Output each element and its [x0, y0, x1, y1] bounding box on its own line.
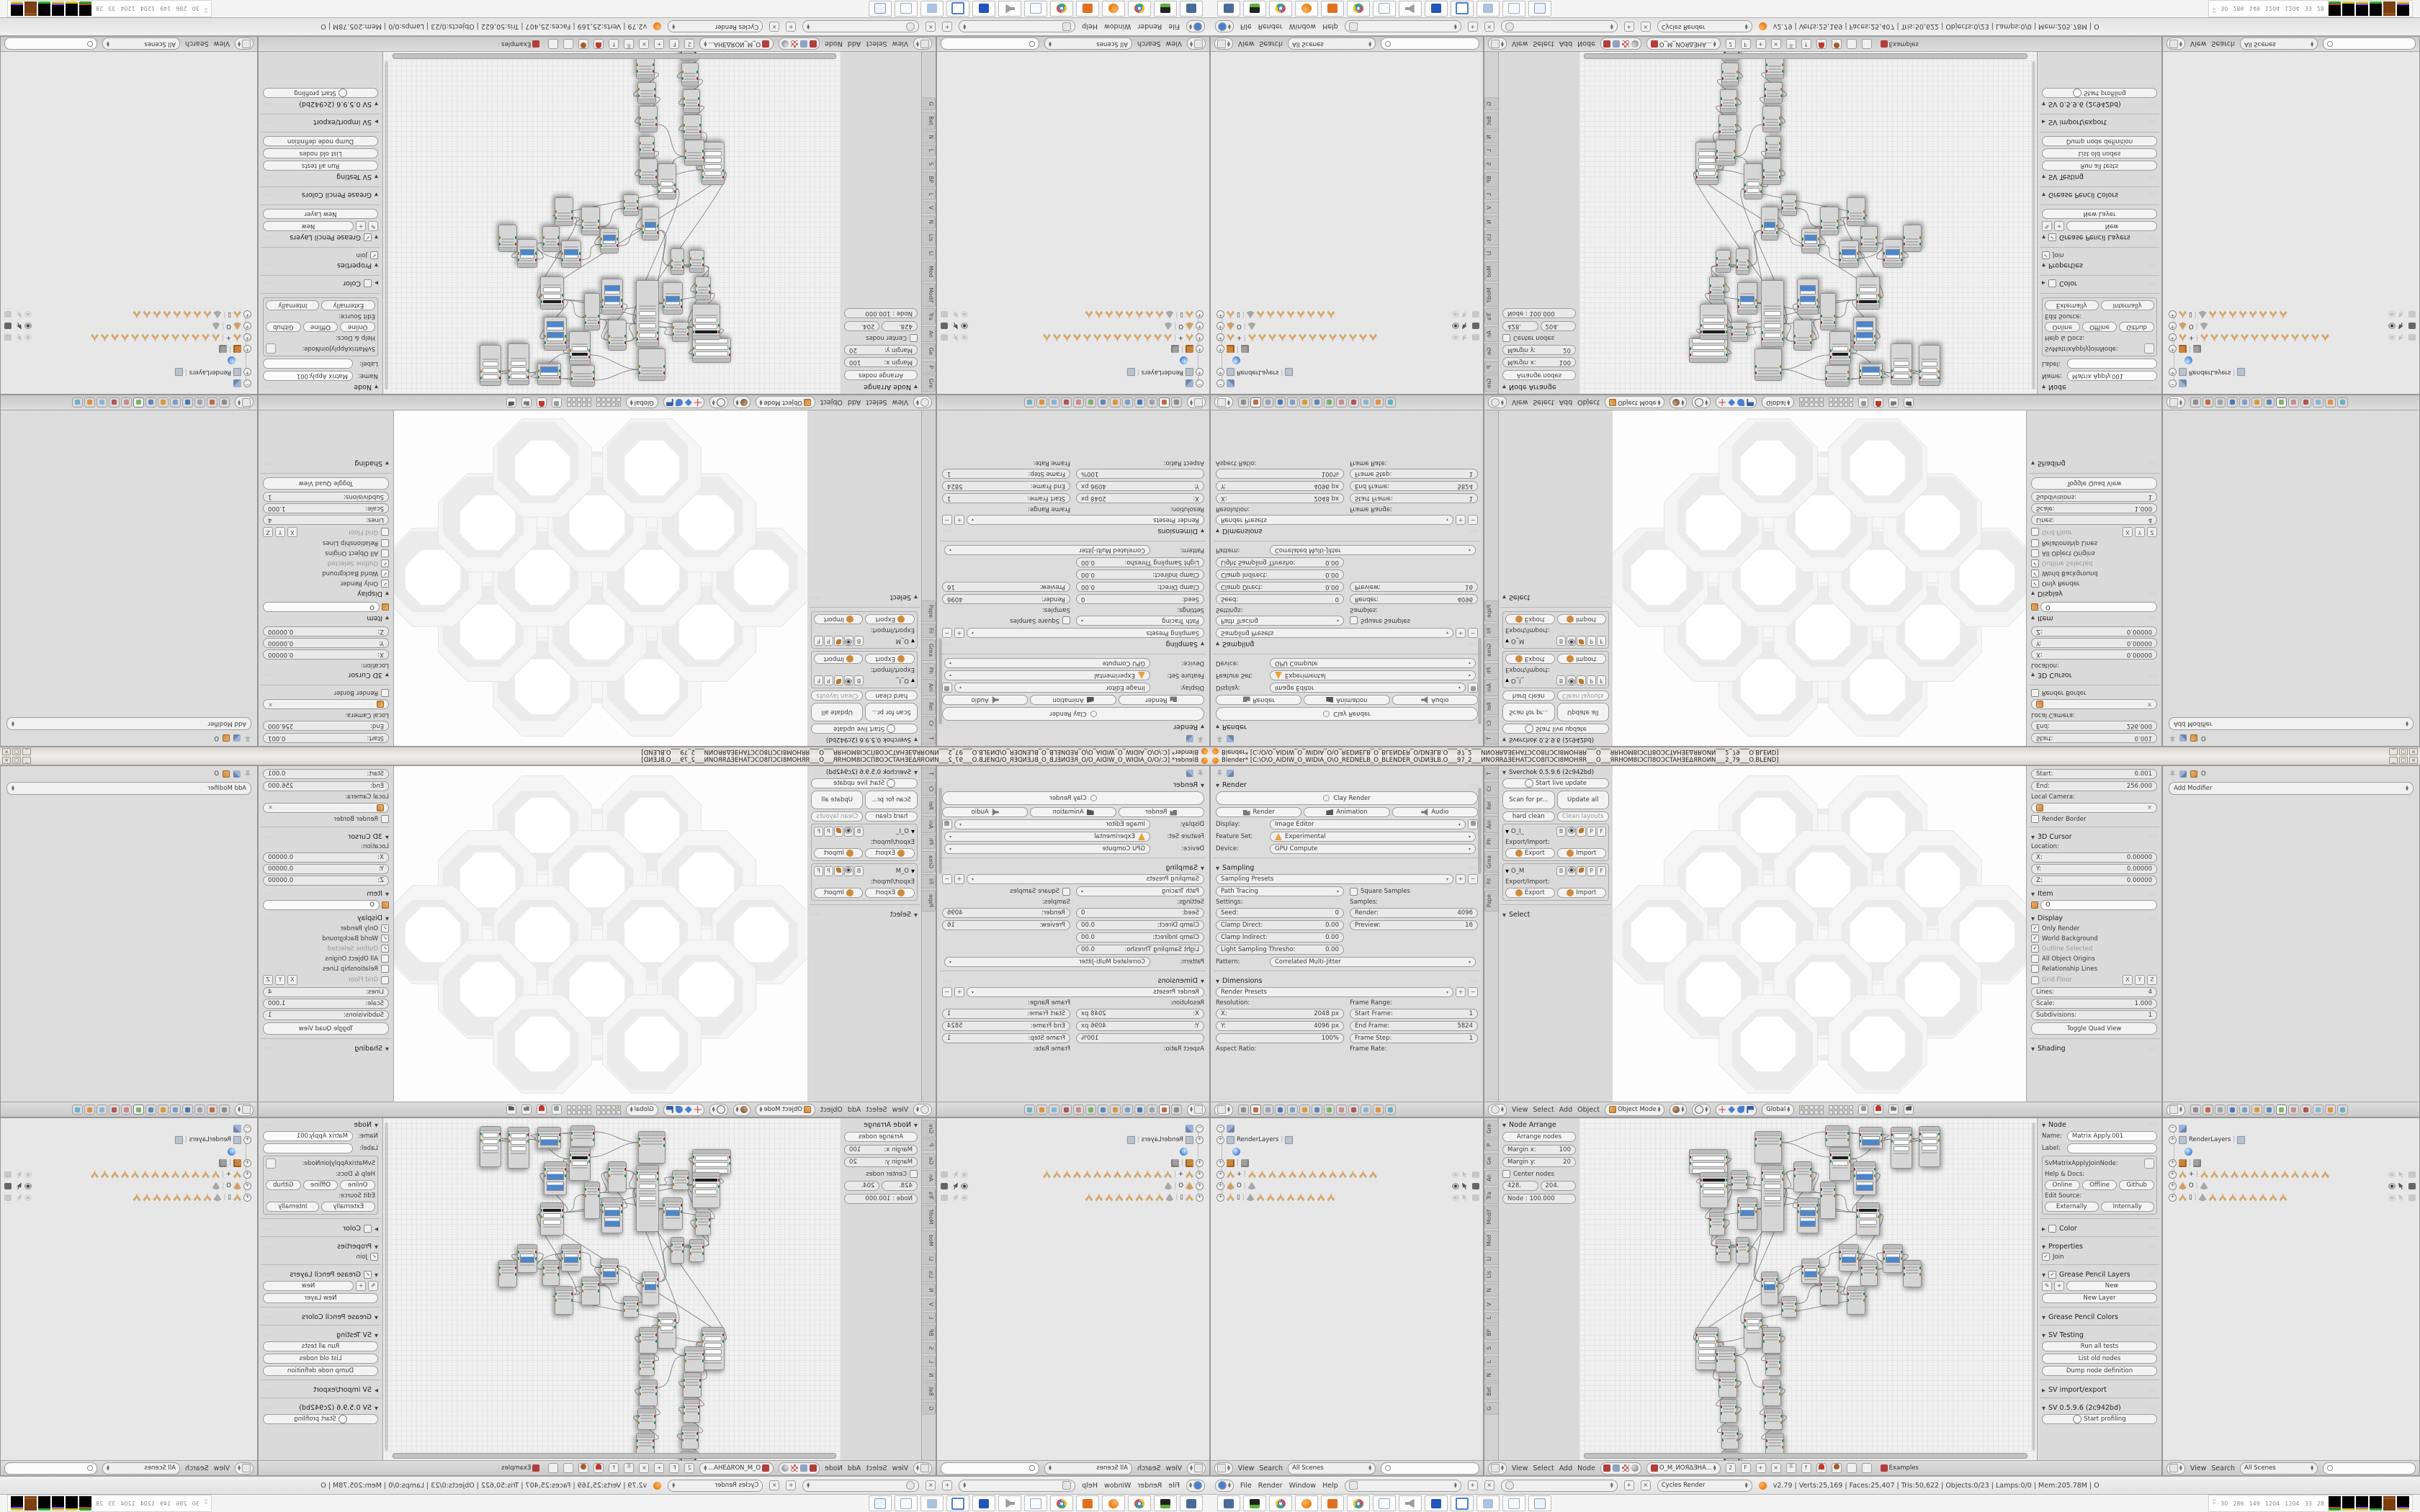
vertical-tab[interactable]: Fil: [922, 874, 936, 888]
sverchok-node[interactable]: [1744, 163, 1762, 199]
cam-icon[interactable]: [2408, 335, 2416, 341]
value-field[interactable]: Margin y:20: [844, 345, 918, 355]
add-preset-button[interactable]: +: [1456, 628, 1466, 638]
expander-icon[interactable]: −: [1216, 380, 1224, 388]
pattern-dropdown[interactable]: Correlated Multi-Jitter▾: [944, 545, 1150, 555]
x-axis-toggle[interactable]: X: [2123, 975, 2133, 985]
calc-taskbar-icon[interactable]: [1476, 1495, 1500, 1511]
clean-layouts-button[interactable]: Clean layouts: [811, 811, 864, 822]
properties-tab-icon[interactable]: [2288, 397, 2299, 408]
sv-testing-panel[interactable]: ▼SV Testing::::: [2042, 1331, 2157, 1339]
outliner-search-field[interactable]: [4, 38, 97, 50]
viewport-canvas[interactable]: [1613, 766, 2028, 1102]
node-label-field[interactable]: [263, 1143, 353, 1153]
sverchok-node[interactable]: [1847, 1286, 1865, 1315]
note2-taskbar-icon[interactable]: [869, 1, 892, 17]
layer-cell[interactable]: [617, 1105, 621, 1110]
cur-icon[interactable]: [2398, 1194, 2406, 1201]
vertical-tab[interactable]: V: [922, 202, 936, 214]
animation-button[interactable]: Animation: [1304, 695, 1389, 705]
sverchok-node[interactable]: [638, 348, 665, 381]
tree-type-toggles[interactable]: [779, 1462, 820, 1475]
io-B-button[interactable]: B: [854, 866, 864, 876]
layer-cell[interactable]: [1839, 1105, 1843, 1110]
panel-render[interactable]: ▼Render::::: [1216, 781, 1478, 789]
panel-render[interactable]: ▼Render::::: [1216, 723, 1478, 731]
outliner-search-field[interactable]: [1381, 1462, 1479, 1475]
window-title-bar[interactable]: Blender* [C:\O\O_AIDIW_O_WIDIA_O\O_REDNE…: [1210, 756, 2420, 765]
origin-x-field[interactable]: 428.: [882, 1181, 918, 1191]
editor-type-selector[interactable]: ▲▼: [1214, 38, 1233, 50]
sverchok-node[interactable]: [1716, 1239, 1731, 1262]
layer-cell[interactable]: [572, 403, 576, 408]
add-modifier-dropdown[interactable]: Add Modifier▲▼: [2169, 717, 2414, 730]
cam-icon[interactable]: [4, 323, 12, 330]
grid-floor-checkbox[interactable]: Grid Floor: [2031, 528, 2120, 536]
copy-icon[interactable]: [2144, 1158, 2154, 1169]
expander-icon[interactable]: +: [1196, 1171, 1204, 1179]
value-field[interactable]: X:0.00000: [2031, 649, 2157, 660]
cur-icon[interactable]: [14, 335, 22, 341]
vertical-tab[interactable]: Gre: [922, 1120, 936, 1138]
properties-tab-icon[interactable]: [2337, 397, 2348, 408]
sverchok-node[interactable]: [1761, 207, 1778, 240]
offline-button[interactable]: Offline: [2082, 322, 2117, 332]
pencil-icon[interactable]: ✎: [368, 1281, 378, 1291]
sverchok-node[interactable]: [658, 163, 676, 199]
sverchok-node[interactable]: [1919, 1126, 1940, 1167]
cur-icon[interactable]: [2398, 1171, 2406, 1178]
editor-type-selector[interactable]: ▲▼: [2166, 397, 2185, 409]
sverchok-node[interactable]: [683, 1399, 700, 1423]
properties-tab-icon[interactable]: [182, 1104, 193, 1115]
eye-icon[interactable]: [844, 866, 853, 876]
panel-sampling[interactable]: ▼Sampling::::: [1216, 864, 1478, 872]
clay-render-button[interactable]: Clay Render: [1216, 707, 1478, 721]
expander-icon[interactable]: +: [1216, 1171, 1224, 1179]
vertical-tab[interactable]: T: [922, 732, 936, 744]
delete-layout-button[interactable]: ×: [926, 1480, 936, 1490]
scene-selector[interactable]: ▲▼: [802, 21, 919, 33]
cur-icon[interactable]: [2398, 335, 2406, 341]
properties-tab-icon[interactable]: [2215, 397, 2226, 408]
eye-icon[interactable]: [1567, 827, 1576, 837]
value-field[interactable]: Z:0.00000: [263, 626, 389, 636]
vertical-tab[interactable]: Pape: [922, 600, 936, 622]
layer-cell[interactable]: [596, 403, 601, 408]
square-samples-checkbox[interactable]: Square Samples: [942, 616, 1070, 626]
node-name-field[interactable]: Matrix Apply.001: [263, 1131, 353, 1141]
value-field[interactable]: 100%: [1076, 1033, 1204, 1043]
pencil-icon[interactable]: ✎: [2042, 1281, 2052, 1291]
sverchok-node[interactable]: [1744, 1313, 1762, 1349]
sverchok-node[interactable]: [542, 1260, 560, 1286]
vertical-tab[interactable]: S: [922, 158, 936, 170]
sverchok-node[interactable]: [683, 114, 702, 140]
start-live-update-button[interactable]: Start live update: [1502, 724, 1609, 734]
value-field[interactable]: Frame Step:1: [1350, 469, 1478, 479]
sverchok-node[interactable]: [1762, 106, 1781, 132]
link-icon[interactable]: [834, 636, 843, 646]
vertical-tab[interactable]: S: [1484, 158, 1498, 170]
properties-tab-icon[interactable]: [2190, 397, 2201, 408]
origin-y-field[interactable]: 204.: [1541, 1181, 1577, 1191]
viewport-shading-selector[interactable]: ▲▼: [733, 397, 750, 409]
properties-tab-icon[interactable]: [1147, 397, 1157, 408]
render-button[interactable]: Render: [1119, 807, 1204, 817]
properties-panel[interactable]: ▼Properties::::: [263, 261, 378, 269]
sverchok-node[interactable]: [695, 276, 711, 300]
clay-render-button[interactable]: Clay Render: [1216, 791, 1478, 805]
device-dropdown[interactable]: GPU Compute▾: [944, 658, 1150, 668]
expander-icon[interactable]: −: [2169, 380, 2177, 388]
expander-icon[interactable]: +: [2169, 323, 2177, 330]
value-field[interactable]: Subdivisions:1: [263, 492, 389, 502]
minimize-button[interactable]: _: [2389, 757, 2398, 764]
outliner-search-field[interactable]: [941, 1462, 1039, 1475]
add-preset-button[interactable]: +: [1456, 515, 1466, 525]
sverchok-node[interactable]: [639, 1327, 658, 1354]
value-field[interactable]: Subdivisions:1: [2031, 1010, 2157, 1020]
sverchok-node[interactable]: [1847, 197, 1865, 226]
sverchok-node[interactable]: [1825, 1125, 1850, 1147]
properties-scrollbar[interactable]: [1478, 788, 1482, 874]
lock-to-scene-icon[interactable]: [552, 397, 562, 408]
sverchok-node[interactable]: [1764, 82, 1783, 104]
properties-tab-icon[interactable]: [72, 397, 83, 408]
layer-cell[interactable]: [1849, 398, 1853, 402]
value-field[interactable]: Preview:16: [1350, 920, 1478, 930]
manipulator-toggles[interactable]: [663, 397, 704, 409]
close-button[interactable]: ×: [2409, 757, 2418, 764]
online-button[interactable]: Online: [2045, 322, 2080, 332]
sverchok-node[interactable]: [537, 363, 561, 385]
expander-icon[interactable]: +: [243, 346, 251, 354]
update-all-button[interactable]: Update all: [1557, 791, 1610, 809]
render-border-checkbox[interactable]: Render Border: [2031, 689, 2157, 697]
audio-button[interactable]: Audio: [1392, 695, 1478, 705]
display-checkbox[interactable]: ✓Only Render: [263, 580, 389, 588]
outliner-row[interactable]: +|: [2, 343, 254, 355]
value-field[interactable]: Clamp Indirect:0.00: [1076, 932, 1204, 942]
eye-icon[interactable]: [2388, 1171, 2396, 1178]
vertical-tab[interactable]: Ph: [1484, 662, 1498, 678]
value-field[interactable]: Seed:0: [1216, 908, 1344, 918]
vertical-tab[interactable]: Ani: [1484, 680, 1498, 697]
editor-type-selector[interactable]: ▲▼: [2166, 1104, 2185, 1116]
render-engine-selector[interactable]: Cycles Render▲▼: [668, 21, 763, 33]
sverchok-node[interactable]: [681, 1426, 699, 1449]
file-menu[interactable]: File: [1240, 23, 1252, 31]
sverchok-node[interactable]: [637, 1408, 656, 1430]
expander-icon[interactable]: +: [2169, 1182, 2177, 1190]
snap-icon[interactable]: [593, 1463, 604, 1473]
vertical-tab[interactable]: N: [922, 215, 936, 228]
select-menu[interactable]: Select: [1533, 1464, 1554, 1472]
properties-tab-icon[interactable]: [133, 397, 144, 408]
outliner-row[interactable]: +RenderLayers|: [1214, 366, 1482, 378]
node-panel[interactable]: ▼Node::::: [2042, 383, 2157, 391]
vertical-tab[interactable]: Modif: [1484, 1205, 1498, 1229]
eye-icon[interactable]: [1452, 312, 1459, 318]
snap-icon[interactable]: [1816, 39, 1827, 49]
color-panel[interactable]: ▶Color::::: [2042, 1225, 2157, 1233]
github-button[interactable]: Github: [266, 1180, 301, 1190]
properties-tab-icon[interactable]: [1238, 1104, 1249, 1115]
sverchok-node[interactable]: [683, 89, 700, 113]
io-P-button[interactable]: P: [824, 866, 833, 876]
outliner-row[interactable]: +|: [1214, 343, 1482, 355]
layer-cell[interactable]: [1829, 398, 1833, 402]
local-camera-field[interactable]: ×: [263, 699, 389, 709]
editor-type-selector[interactable]: ▲▼: [1214, 397, 1233, 409]
layer-cell[interactable]: [606, 1105, 611, 1110]
minimize-button[interactable]: _: [22, 757, 31, 764]
layer-cell[interactable]: [1799, 1110, 1803, 1115]
sverchok-node[interactable]: [638, 1131, 665, 1164]
vertical-tab[interactable]: Grea: [922, 851, 936, 873]
value-field[interactable]: Preview:16: [1350, 582, 1478, 592]
origin-x-field[interactable]: 428.: [1502, 1181, 1538, 1191]
sverchok-node[interactable]: [663, 282, 683, 315]
layer-cell[interactable]: [1799, 1105, 1803, 1110]
drive-taskbar-icon[interactable]: [1243, 1, 1266, 17]
internally-button[interactable]: Internally: [2101, 300, 2155, 310]
vertical-tab[interactable]: L: [1484, 1356, 1498, 1367]
sverchok-node[interactable]: [1860, 226, 1878, 252]
node-menu[interactable]: Node: [825, 40, 843, 48]
eye-icon[interactable]: [1567, 675, 1576, 685]
vertical-tab[interactable]: Rel: [1484, 698, 1498, 716]
pin-tree-icon[interactable]: [624, 39, 634, 49]
origin-x-field[interactable]: 428.: [882, 321, 918, 331]
cur-icon[interactable]: [2398, 312, 2406, 318]
select-menu[interactable]: Select: [866, 399, 887, 407]
properties-tab-icon[interactable]: [84, 397, 95, 408]
swirl-taskbar-icon[interactable]: [1321, 1, 1344, 17]
manipulator-toggles[interactable]: [663, 1104, 704, 1116]
value-field[interactable]: Render:4096: [1350, 594, 1478, 604]
value-field[interactable]: End Frame:5824: [1350, 1021, 1478, 1031]
pin-tree-icon[interactable]: [1786, 39, 1796, 49]
editor-type-selector[interactable]: ▲▼: [1214, 1104, 1233, 1116]
sverchok-node[interactable]: [1700, 304, 1728, 340]
layer-cell[interactable]: [1809, 403, 1814, 408]
outliner-row[interactable]: −: [938, 1122, 1206, 1134]
layer-cell[interactable]: [572, 1105, 576, 1110]
value-field[interactable]: Render:4096: [942, 908, 1070, 918]
x-axis-toggle[interactable]: X: [287, 527, 297, 537]
properties-tab-icon[interactable]: [2325, 397, 2336, 408]
sverchok-node[interactable]: [692, 1172, 720, 1208]
internally-button[interactable]: Internally: [266, 1202, 320, 1212]
display-dropdown[interactable]: Image Editor▾: [954, 683, 1150, 693]
value-field[interactable]: Y:0.00000: [2031, 638, 2157, 648]
layer-grid-right[interactable]: [1829, 1105, 1853, 1115]
layer-cell[interactable]: [617, 1110, 621, 1115]
swirl-taskbar-icon[interactable]: [1076, 1495, 1099, 1511]
speaker-taskbar-icon[interactable]: [998, 1495, 1021, 1511]
sverchok-node[interactable]: [1860, 1260, 1878, 1286]
value-field[interactable]: Scale:1.000: [2031, 503, 2157, 513]
scan-button[interactable]: Scan for pr...: [1502, 703, 1555, 721]
copy-nodes-icon[interactable]: [563, 1463, 573, 1473]
properties-tab-icon[interactable]: [158, 1104, 169, 1115]
calc-taskbar-icon[interactable]: [920, 1, 944, 17]
sverchok-node[interactable]: [1765, 58, 1784, 79]
sverchok-node[interactable]: [561, 240, 581, 268]
3d-cursor-panel[interactable]: ▼3D Cursor::::: [2031, 671, 2157, 679]
outliner-row[interactable]: +▯|: [1214, 309, 1482, 320]
add-icon[interactable]: +: [2054, 221, 2064, 231]
value-field[interactable]: Seed:0: [1076, 908, 1204, 918]
fake-user-toggle[interactable]: F: [669, 39, 679, 49]
vertical-tab[interactable]: L: [922, 145, 936, 156]
vertical-tab[interactable]: P: [922, 361, 936, 373]
vertical-tab[interactable]: Modif: [922, 1205, 936, 1229]
cam-icon[interactable]: [2408, 312, 2416, 318]
orientation-selector[interactable]: Global▲▼: [626, 1104, 658, 1116]
sverchok-node[interactable]: [1737, 1197, 1757, 1230]
properties-tab-icon[interactable]: [1312, 1104, 1322, 1115]
properties-tab-icon[interactable]: [1098, 1104, 1108, 1115]
gp-new-button[interactable]: New: [263, 1281, 354, 1291]
outliner-row[interactable]: +RenderLayers|: [2, 1134, 254, 1146]
add-layout-button[interactable]: +: [1468, 1480, 1478, 1490]
io-F-button[interactable]: F: [814, 827, 823, 837]
layer-cell[interactable]: [1799, 398, 1803, 402]
sverchok-node[interactable]: [1765, 1433, 1784, 1454]
eye-icon[interactable]: [2388, 1194, 2396, 1201]
value-field[interactable]: Light Sampling Thresho:0.00: [1216, 945, 1344, 955]
outliner-row[interactable]: −: [2, 378, 254, 390]
sverchok-node[interactable]: [1754, 1131, 1782, 1164]
eye-icon[interactable]: [961, 312, 968, 318]
sverchok-node[interactable]: [542, 226, 560, 252]
panel-dimensions[interactable]: ▼Dimensions::::: [942, 977, 1204, 985]
layer-grid-right[interactable]: [567, 398, 591, 408]
window-menu[interactable]: Window: [1104, 1482, 1131, 1490]
vertical-tab[interactable]: Mod: [922, 1230, 936, 1251]
y-axis-toggle[interactable]: Y: [275, 975, 285, 985]
add-menu[interactable]: Add: [1559, 1464, 1572, 1472]
value-field[interactable]: End:256.000: [263, 781, 389, 791]
fake-user-toggle[interactable]: F: [1741, 1463, 1751, 1473]
expander-icon[interactable]: +: [243, 1194, 251, 1202]
value-field[interactable]: Start Frame:1: [942, 493, 1070, 503]
properties-tab-icon[interactable]: [1122, 397, 1133, 408]
sverchok-node[interactable]: [672, 322, 689, 342]
properties-tab-icon[interactable]: [145, 1104, 156, 1115]
examples-menu[interactable]: Examples: [498, 1463, 543, 1474]
render-presets-dropdown[interactable]: Render Presets▾: [1216, 515, 1453, 525]
export-button[interactable]: Export: [1505, 848, 1555, 858]
outliner-row[interactable]: [1214, 355, 1482, 366]
sverchok-node[interactable]: [642, 207, 659, 240]
cur-icon[interactable]: [951, 335, 958, 341]
sverchok-node[interactable]: [555, 197, 573, 226]
pivot-point-selector[interactable]: ▲▼: [1692, 397, 1711, 409]
expander-icon[interactable]: +: [1216, 311, 1224, 319]
orientation-selector[interactable]: Global▲▼: [1762, 397, 1794, 409]
vertical-tab[interactable]: T: [1484, 768, 1498, 780]
io-F-button[interactable]: F: [1597, 636, 1606, 646]
file-menu[interactable]: File: [1168, 1482, 1180, 1490]
vertical-tab[interactable]: An: [1484, 326, 1498, 342]
offline-button[interactable]: Offline: [303, 322, 339, 332]
outliner-row[interactable]: +O|: [1214, 1180, 1482, 1192]
value-field[interactable]: Clamp Direct:0.00: [1076, 920, 1204, 930]
vertical-tab[interactable]: Ani: [922, 680, 936, 697]
add-menu[interactable]: Add: [1559, 1106, 1572, 1114]
search-menu[interactable]: Search: [2211, 40, 2235, 48]
outliner-row[interactable]: +O|: [2166, 1180, 2418, 1192]
sv-testing-panel[interactable]: ▼SV Testing::::: [263, 1331, 378, 1339]
sverchok-node[interactable]: [1718, 114, 1737, 140]
display-checkbox[interactable]: ✓World Background: [2031, 570, 2157, 577]
sverchok-node[interactable]: [1903, 1260, 1922, 1287]
sverchok-node[interactable]: [1853, 317, 1876, 351]
expander-icon[interactable]: +: [1196, 346, 1204, 354]
note-taskbar-icon[interactable]: [1373, 1, 1396, 17]
swirl-taskbar-icon[interactable]: [1321, 1495, 1344, 1511]
render-anim-icon[interactable]: [1904, 397, 1914, 408]
value-field[interactable]: Z:0.00000: [2031, 876, 2157, 886]
layer-grid-left[interactable]: [596, 398, 621, 408]
view-menu[interactable]: View: [1238, 40, 1255, 48]
value-field[interactable]: Scale:1.000: [263, 503, 389, 513]
outliner-row[interactable]: +|: [938, 1157, 1206, 1169]
link-icon[interactable]: [834, 827, 843, 837]
vertical-tab[interactable]: S: [1484, 1342, 1498, 1354]
object-menu[interactable]: Object: [1577, 399, 1600, 407]
pin-tree-icon[interactable]: [624, 1463, 634, 1473]
value-field[interactable]: End Frame:5824: [1350, 481, 1478, 491]
layer-cell[interactable]: [1844, 398, 1848, 402]
unlink-tree-button[interactable]: ×: [639, 1463, 649, 1473]
layer-cell[interactable]: [1839, 1110, 1843, 1115]
render-presets-dropdown[interactable]: Render Presets▾: [1216, 987, 1453, 997]
properties-tab-icon[interactable]: [1336, 397, 1347, 408]
pivot-point-selector[interactable]: ▲▼: [709, 397, 728, 409]
value-field[interactable]: Start:0.001: [2031, 733, 2157, 743]
outliner-row[interactable]: +O|: [1214, 320, 1482, 332]
properties-panel[interactable]: ▼Properties::::: [263, 1243, 378, 1251]
vertical-tab[interactable]: Li: [1484, 1252, 1498, 1265]
paste-nodes-icon[interactable]: [548, 39, 558, 49]
vertical-tab[interactable]: BP: [1484, 1325, 1498, 1341]
hard-clean-button[interactable]: hard clean: [1502, 690, 1555, 701]
layer-cell[interactable]: [567, 1110, 571, 1115]
outliner-search-field[interactable]: [1381, 38, 1479, 50]
cur-icon[interactable]: [951, 1171, 958, 1178]
vertical-tab[interactable]: L: [1484, 189, 1498, 200]
sverchok-node[interactable]: [1761, 1165, 1784, 1232]
gp-new-button[interactable]: New: [2066, 221, 2157, 231]
sverchok-node[interactable]: [1700, 1172, 1728, 1208]
note2-taskbar-icon[interactable]: [1528, 1, 1551, 17]
audio-button[interactable]: Audio: [942, 807, 1028, 817]
copy-nodes-icon[interactable]: [563, 39, 573, 49]
delete-scene-button[interactable]: ×: [1641, 1480, 1651, 1490]
arrange-nodes-button[interactable]: Arrange nodes: [844, 1132, 918, 1142]
node-canvas[interactable]: [1579, 51, 2038, 394]
vertical-tab[interactable]: Ge: [922, 343, 936, 359]
outliner-row[interactable]: −: [938, 378, 1206, 390]
sverchok-node[interactable]: [1721, 63, 1739, 86]
sverchok-node[interactable]: [1839, 240, 1859, 268]
layer-cell[interactable]: [577, 1105, 581, 1110]
